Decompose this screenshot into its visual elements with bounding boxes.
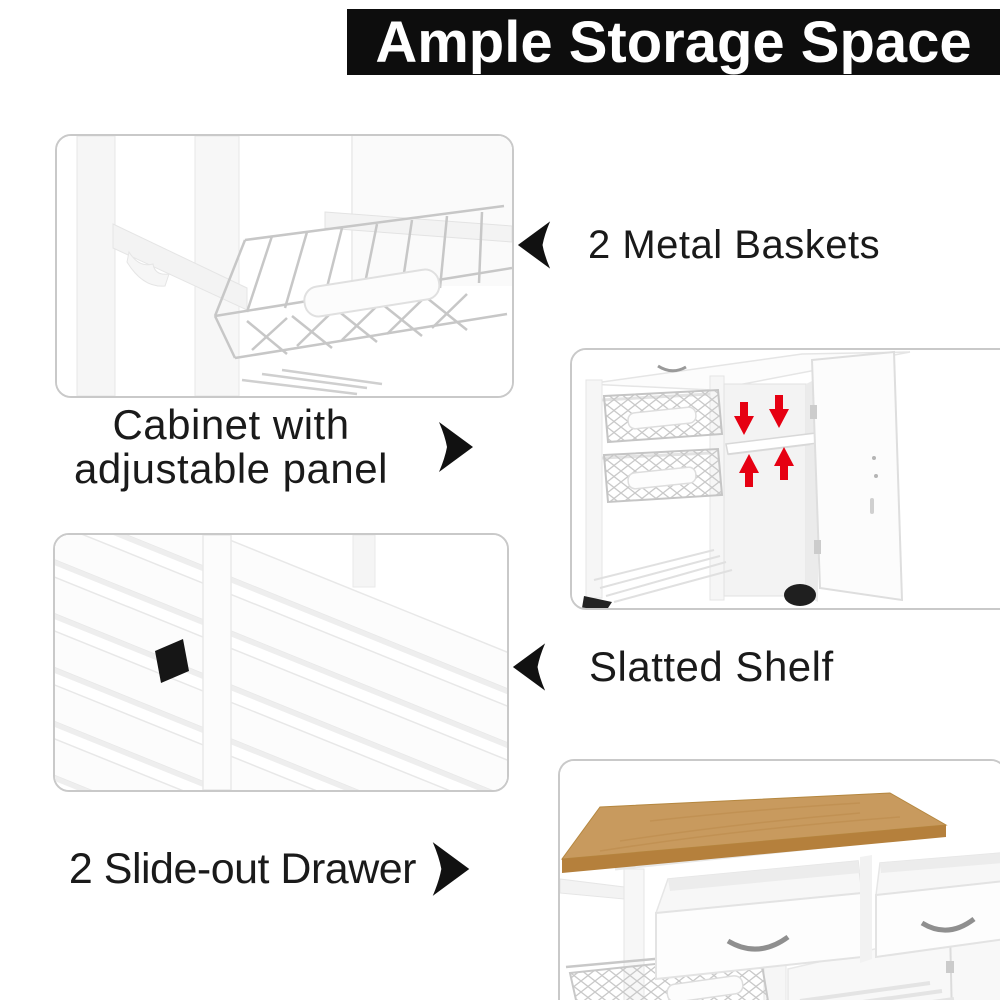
product-infographic: Ample Storage Space xyxy=(0,0,1000,1000)
arrow-left-icon xyxy=(516,219,552,271)
cart-panel xyxy=(353,535,375,587)
callout-label-metal-baskets: 2 Metal Baskets xyxy=(588,223,880,268)
open-door xyxy=(810,352,902,600)
arrow-left-icon xyxy=(511,640,547,694)
title-banner: Ample Storage Space xyxy=(347,9,1000,75)
drawers-illustration xyxy=(560,761,1000,1000)
callout-metal-baskets: 2 Metal Baskets xyxy=(516,216,880,274)
callout-slide-out-drawer: 2 Slide-out Drawer xyxy=(0,838,472,900)
photo-metal-baskets xyxy=(55,134,514,398)
cabinet-illustration xyxy=(572,350,1000,608)
left-drawer xyxy=(656,861,862,979)
callout-label-cabinet: Cabinet with adjustable panel xyxy=(45,403,417,490)
callout-label-line1: Cabinet with xyxy=(112,401,349,448)
caster-wheel xyxy=(784,584,816,606)
photo-drawers xyxy=(558,759,1000,1000)
callout-slatted-shelf: Slatted Shelf xyxy=(511,637,834,697)
metal-baskets-illustration xyxy=(57,136,512,396)
callout-cabinet: Cabinet with adjustable panel xyxy=(45,403,475,490)
drawer-divider xyxy=(860,855,872,963)
callout-label-slatted-shelf: Slatted Shelf xyxy=(589,643,834,691)
callout-label-line2: adjustable panel xyxy=(74,445,388,492)
arrow-right-icon xyxy=(430,840,472,898)
photo-cabinet xyxy=(570,348,1000,610)
slatted-shelf-illustration xyxy=(55,535,507,790)
page-title: Ample Storage Space xyxy=(375,9,971,76)
cart-leg xyxy=(203,535,231,790)
right-drawer xyxy=(876,853,1000,957)
callout-label-slide-out-drawer: 2 Slide-out Drawer xyxy=(69,845,416,894)
photo-slatted-shelf xyxy=(53,533,509,792)
arrow-right-icon xyxy=(437,420,475,474)
